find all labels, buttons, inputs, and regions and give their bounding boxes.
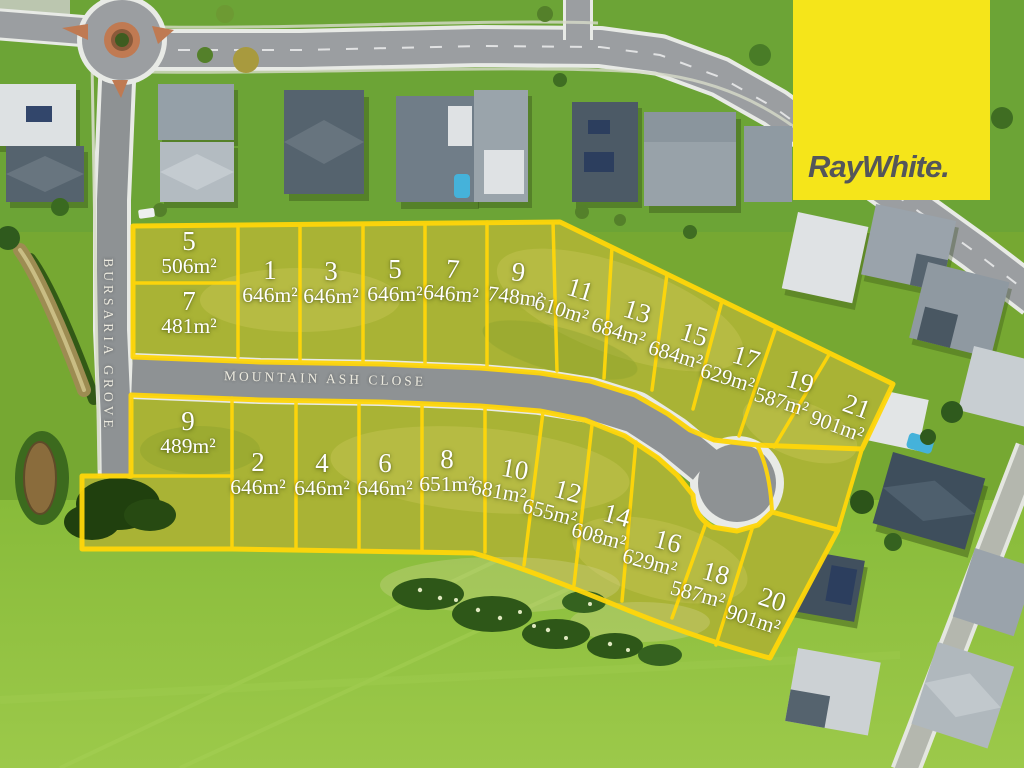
raywhite-logo: RayWhite. <box>793 0 990 200</box>
pond <box>24 442 56 514</box>
raywhite-logo-text: RayWhite. <box>808 149 949 185</box>
